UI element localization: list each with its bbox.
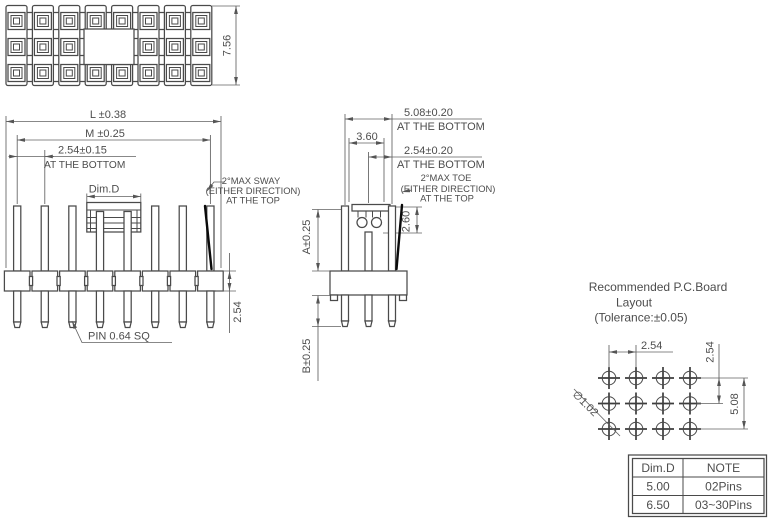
front-dim-m: M ±0.25 [85,128,125,140]
side-cap-clip [352,205,390,228]
side-view: 5.08±0.20 AT THE BOTTOM 3.60 2.54±0.20 A… [301,107,495,381]
side-dim-cap-ext [349,138,384,202]
drawing-canvas: 7.56 L ±0.38 M ±0.25 2.54±0.15 AT THE BO… [0,0,768,520]
pcb-layout: Recommended P.C.Board Layout (Tolerance:… [570,280,748,440]
front-view: L ±0.38 M ±0.25 2.54±0.15 AT THE BOTTOM … [4,109,300,343]
front-dim-pitch: 2.54±0.15 [58,145,107,157]
front-sway-note-3: AT THE TOP [226,195,280,206]
side-toe-pin-highlight [397,205,403,269]
front-bottom-pins [14,291,214,322]
front-dimd: Dim.D [89,184,120,196]
front-dim-pitch-note: AT THE BOTTOM [44,160,125,171]
side-dim-pitch-note: AT THE BOTTOM [397,159,485,171]
side-middle-pin [365,232,372,271]
side-dim-b-ext [312,296,341,382]
pcb-dim-v: 2.54 [705,341,717,362]
spec-table-header-dimd: Dim.D [641,461,675,475]
side-body [330,271,407,295]
side-dim-a-ext [312,210,341,272]
side-dim-span-note: AT THE BOTTOM [397,121,485,133]
front-dim-l: L ±0.38 [90,109,126,121]
spec-table-cell-r0c1: 02Pins [705,480,742,494]
pcb-title-1: Recommended P.C.Board [589,280,728,294]
side-toe-note-1: 2°MAX TOE [421,172,472,183]
pcb-title-2: Layout [616,296,653,310]
front-pin-label: PIN 0.64 SQ [88,331,150,343]
side-dim-span: 5.08±0.20 [404,107,453,119]
top-view-height-dim: 7.56 [222,35,234,56]
spec-table-cell-r1c1: 03~30Pins [695,498,752,512]
spec-table: Dim.D NOTE 5.00 02Pins 6.50 03~30Pins [629,455,767,517]
pin-header-technical-drawing: 7.56 L ±0.38 M ±0.25 2.54±0.15 AT THE BO… [0,0,768,520]
side-dim-b: B±0.25 [301,339,313,374]
spec-table-header-note: NOTE [707,461,740,475]
spec-table-cell-r0c0: 5.00 [646,480,670,494]
pcb-dim-span: 5.08 [729,393,741,414]
front-bottom-pin-tips [14,322,214,328]
pcb-title-3: (Tolerance:±0.05) [594,311,687,325]
side-dim-pitch: 2.54±0.20 [404,145,453,157]
pcb-dim-h-ext [609,345,636,368]
side-dim-cap: 3.60 [356,131,377,143]
side-bottom-pins [342,295,396,321]
front-body-dim: 2.54 [232,301,244,322]
front-cap [87,203,141,233]
spec-table-cell-r1c0: 6.50 [646,498,670,512]
pcb-hole-dia: ∅1.02 [570,389,600,419]
side-bottom-pin-tips [342,321,396,327]
side-dim-a: A±0.25 [301,220,313,255]
pcb-dim-h: 2.54 [641,340,662,352]
top-view: 7.56 [6,6,240,86]
top-view-center-plate [84,29,134,65]
side-toe-note-3: AT THE TOP [420,193,474,204]
